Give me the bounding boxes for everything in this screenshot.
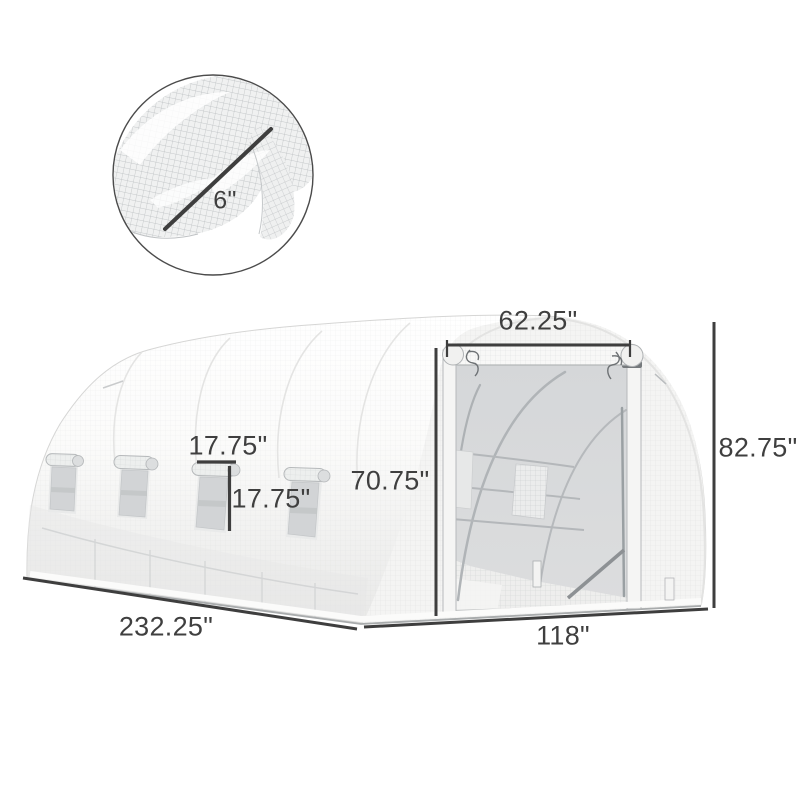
door-roll-right-cap	[621, 345, 643, 367]
door-roll-left-cap	[443, 344, 464, 365]
dimension-label-overall-width: 118"	[536, 623, 590, 650]
dimension-label-door-width: 62.25"	[499, 308, 578, 335]
dimension-label-overall-height: 82.75"	[719, 435, 798, 462]
inset-fabric	[100, 72, 318, 239]
door-opening	[449, 364, 630, 613]
greenhouse-illustration	[0, 0, 800, 800]
interior-post	[533, 561, 541, 587]
door-frame-right-pole	[627, 361, 641, 609]
dimension-label-mesh-detail: 6"	[213, 189, 236, 214]
dimension-label-door-height: 70.75"	[351, 468, 430, 495]
door-frame-left-pole	[443, 350, 456, 614]
window-roll-cap	[146, 458, 158, 470]
dimension-label-window-width: 17.75"	[189, 433, 268, 460]
window-roll-cap	[318, 470, 330, 482]
dimension-label-window-height: 17.75"	[232, 486, 311, 513]
window-roll-cap	[73, 456, 84, 467]
mesh-detail-inset	[100, 72, 318, 275]
front-post	[665, 578, 674, 600]
greenhouse-dimension-diagram: 6" 62.25" 82.75" 70.75" 17.75" 17.75" 23…	[0, 0, 800, 800]
dimension-label-overall-length: 232.25"	[119, 614, 213, 641]
